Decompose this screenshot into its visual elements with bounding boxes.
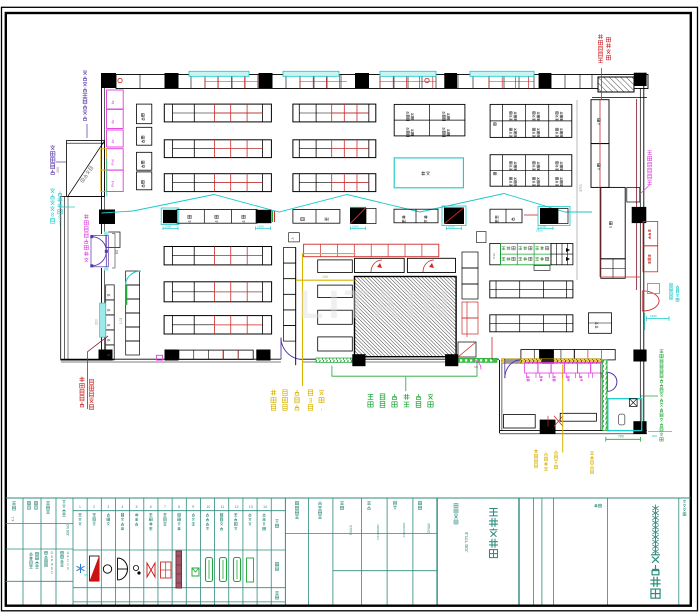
svg-text:1500: 1500	[165, 224, 172, 228]
svg-text:1500: 1500	[448, 224, 455, 228]
svg-text:-3: -3	[291, 237, 295, 240]
svg-text:9: 9	[192, 505, 194, 509]
svg-text:MUILD: MUILD	[349, 524, 353, 535]
svg-text:4: 4	[121, 505, 123, 509]
svg-text:11: 11	[221, 505, 225, 509]
svg-text:600: 600	[652, 434, 657, 438]
svg-text:1500: 1500	[536, 229, 543, 233]
svg-text:DRAW: DRAW	[427, 523, 431, 533]
svg-text:4a: 4a	[111, 101, 115, 105]
svg-text:JOB NO: JOB NO	[66, 524, 70, 536]
svg-text:5: 5	[609, 226, 613, 228]
svg-text:4a: 4a	[111, 140, 115, 144]
svg-text:CHECKED: CHECKED	[402, 522, 406, 538]
svg-text:C12: C12	[492, 253, 496, 259]
svg-text:JOB TITLE: JOB TITLE	[464, 531, 469, 552]
svg-text:5: 5	[136, 505, 138, 509]
svg-text:Ph4: Ph4	[111, 159, 115, 165]
svg-text:Ph4: Ph4	[111, 181, 115, 187]
svg-text:200: 200	[95, 319, 99, 325]
svg-text:12: 12	[235, 505, 239, 509]
svg-text:3: 3	[107, 505, 109, 509]
svg-text:4: 4	[597, 168, 601, 170]
svg-text::: :	[604, 504, 605, 508]
svg-text:1500: 1500	[257, 224, 264, 228]
svg-text:1: 1	[79, 505, 81, 509]
svg-text:1.03: 1.03	[119, 318, 123, 325]
svg-text:300: 300	[56, 167, 60, 173]
svg-text:4.1: 4.1	[11, 517, 15, 522]
svg-text:8: 8	[51, 213, 54, 219]
svg-text:6: 6	[67, 567, 69, 571]
svg-text:700: 700	[618, 435, 624, 439]
svg-text:XS: XS	[84, 573, 88, 577]
svg-text:4: 4	[597, 123, 601, 125]
svg-text:,: ,	[321, 405, 323, 412]
svg-text:M9: M9	[474, 365, 478, 369]
svg-text:13: 13	[249, 505, 253, 509]
svg-text:2: 2	[93, 505, 95, 509]
svg-text:FIFURGBD: FIFURGBD	[376, 524, 380, 540]
svg-text:M2: M2	[115, 250, 119, 255]
svg-text:4a: 4a	[111, 120, 115, 124]
svg-text:6: 6	[150, 505, 152, 509]
svg-text:3700: 3700	[579, 184, 583, 192]
svg-text:3: 3	[309, 397, 313, 404]
svg-text:7: 7	[164, 505, 166, 509]
svg-text:LITAIN: LITAIN	[299, 283, 455, 327]
svg-text:8: 8	[178, 505, 180, 509]
svg-text:150: 150	[322, 275, 328, 279]
svg-text:14: 14	[263, 505, 267, 509]
svg-text:1500: 1500	[352, 224, 359, 228]
svg-text:10: 10	[206, 505, 210, 509]
svg-text:1500: 1500	[650, 314, 657, 318]
